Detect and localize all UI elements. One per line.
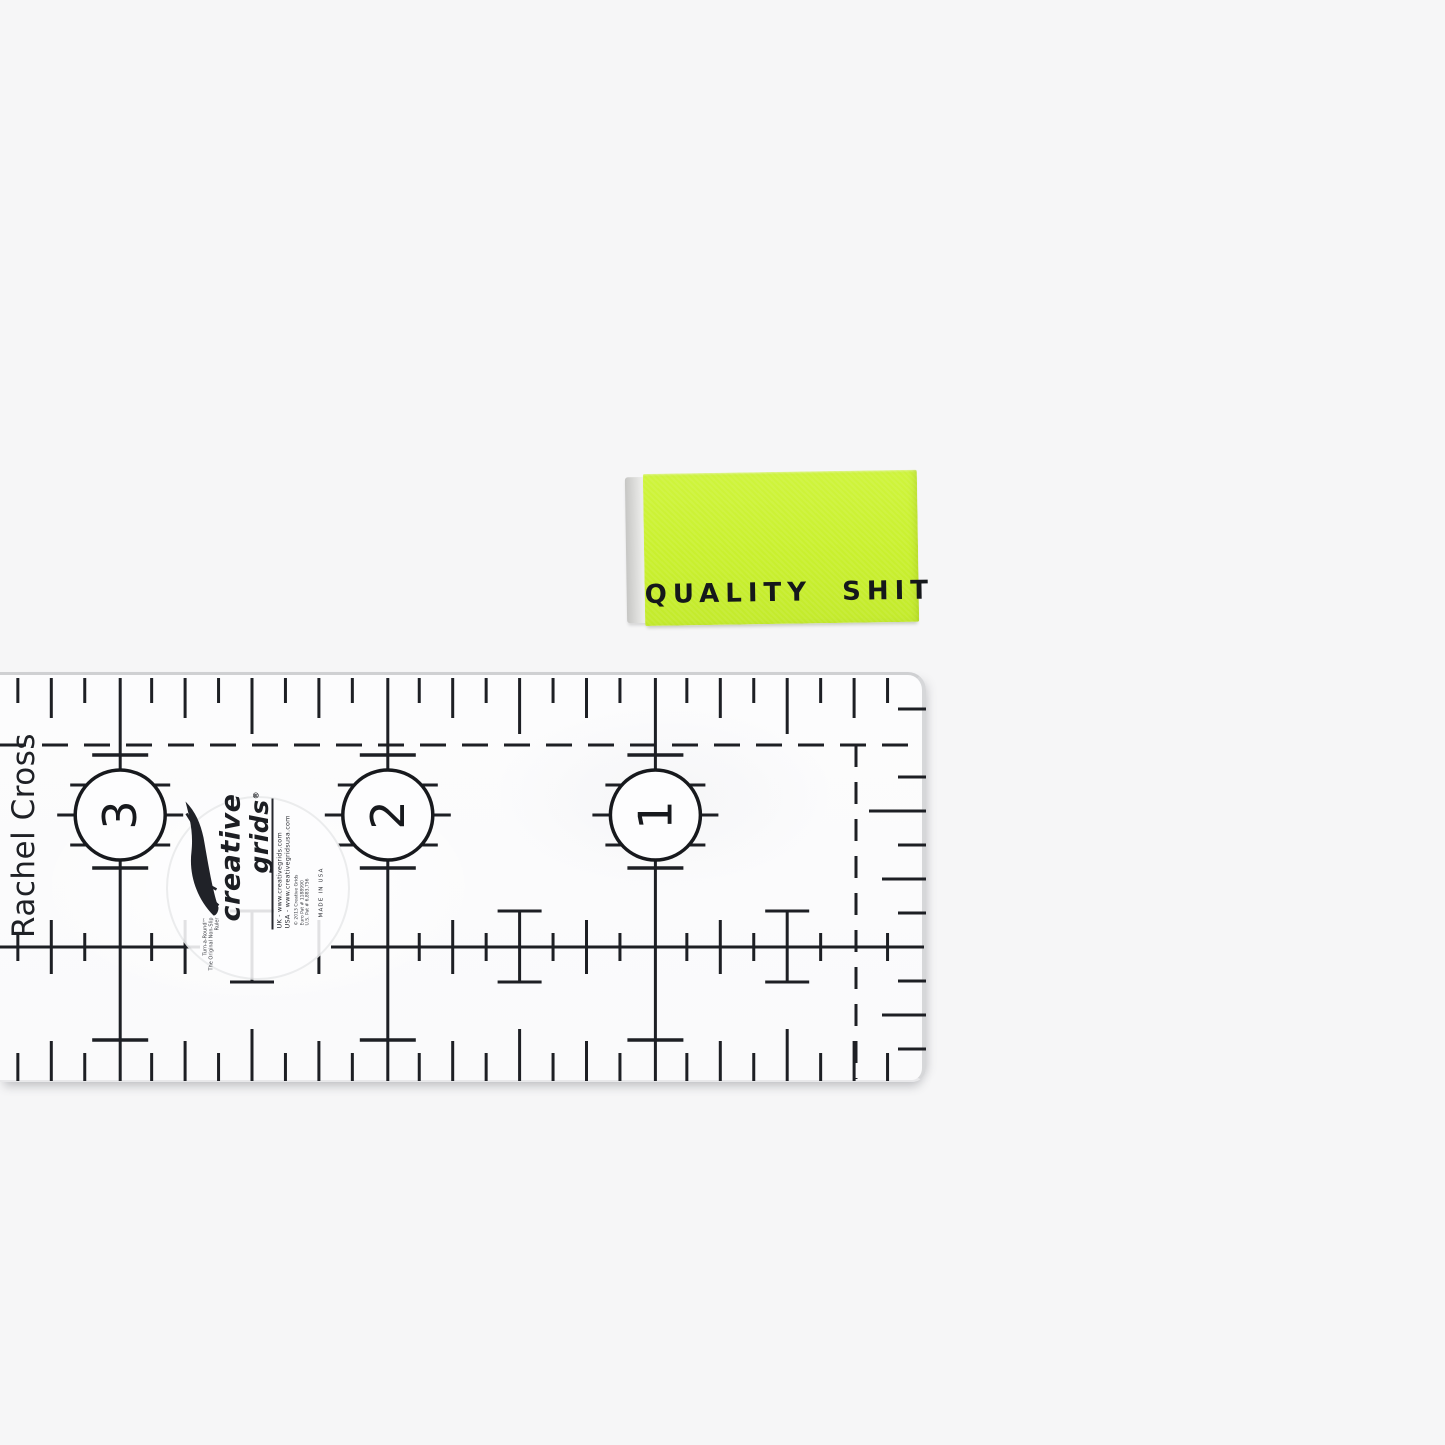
ruler-inch-circles: 3 2 1 xyxy=(0,675,926,1085)
brand-name-grids: grids® xyxy=(244,791,272,874)
handwritten-owner-name: Rachel Cross xyxy=(6,738,46,938)
uk-website: UK - www.creativegrids.com xyxy=(277,832,284,928)
logo-tagline: Turn-a-Round™ The Original Non-Slip Rule… xyxy=(203,918,221,982)
quilting-ruler: 3 2 1 xyxy=(0,672,926,1082)
inch-marker-1: 1 xyxy=(592,770,718,860)
product-photo-scene: QUALITY SHIT 3 xyxy=(0,0,1445,1445)
copyright-patent-text: © 2013 Creative Grids Euro Pat # 1188990… xyxy=(295,875,312,926)
label-front: QUALITY SHIT xyxy=(643,470,919,626)
inch-number: 3 xyxy=(93,800,147,829)
logo-rule-line xyxy=(272,799,274,930)
made-in-usa-text: MADE IN USA xyxy=(319,867,325,917)
inch-marker-2: 2 xyxy=(325,770,451,860)
label-text: QUALITY SHIT xyxy=(644,576,918,610)
usa-website: USA - www.creativegridsusa.com xyxy=(285,815,292,928)
inch-marker-3: 3 xyxy=(57,770,183,860)
inch-number: 2 xyxy=(361,800,415,829)
hare-swoosh-icon xyxy=(186,800,220,918)
woven-label: QUALITY SHIT xyxy=(625,470,919,627)
creative-grids-logo: Turn-a-Round™ The Original Non-Slip Rule… xyxy=(186,794,331,984)
inch-number: 1 xyxy=(628,800,682,829)
brand-name-creative: creative xyxy=(218,794,245,922)
